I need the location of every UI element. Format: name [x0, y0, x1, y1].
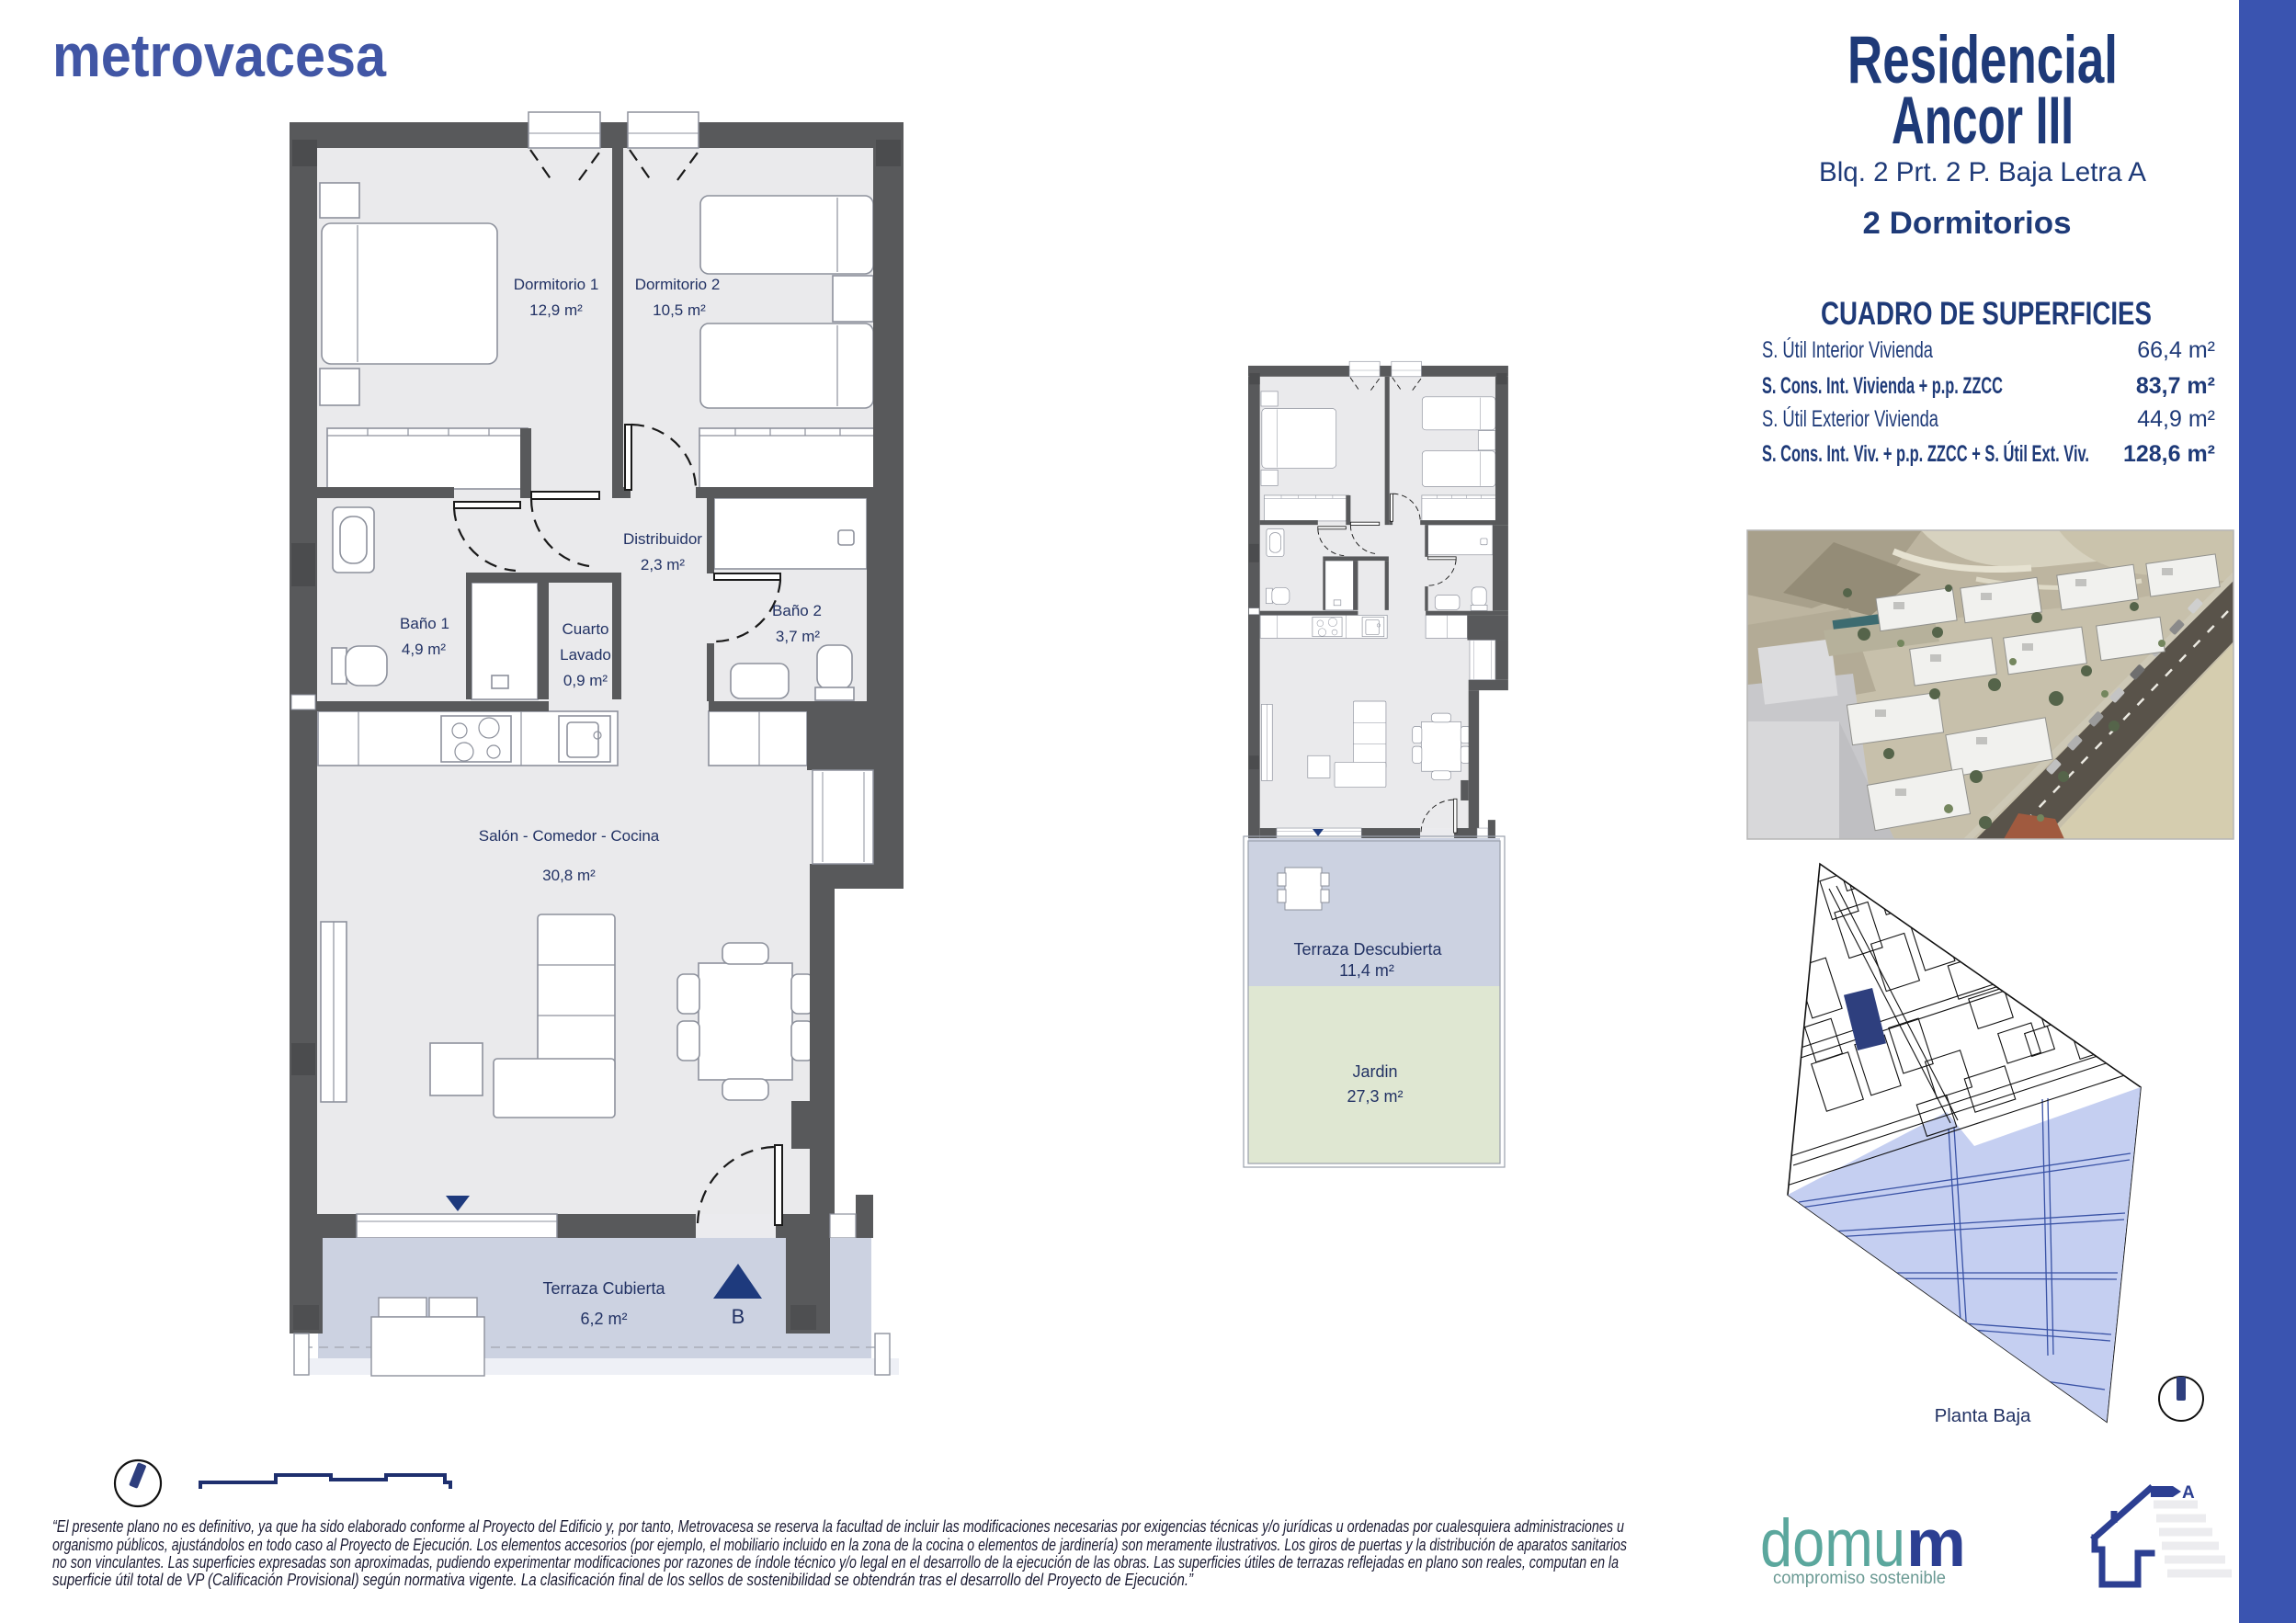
svg-text:3,7 m²: 3,7 m² — [776, 628, 821, 645]
svg-text:12,9 m²: 12,9 m² — [529, 301, 583, 319]
svg-text:B: B — [732, 1305, 745, 1328]
svg-text:Salón - Comedor - Cocina: Salón - Comedor - Cocina — [479, 827, 660, 845]
svg-text:Lavado: Lavado — [560, 646, 611, 664]
svg-text:10,5 m²: 10,5 m² — [653, 301, 706, 319]
svg-text:superficie útil total de VP (C: superficie útil total de VP (Calificació… — [52, 1571, 1194, 1589]
svg-text:0,9 m²: 0,9 m² — [563, 672, 608, 689]
svg-text:6,2 m²: 6,2 m² — [580, 1310, 627, 1328]
svg-text:Terraza Cubierta: Terraza Cubierta — [542, 1279, 665, 1298]
svg-text:Terraza Descubierta: Terraza Descubierta — [1293, 940, 1442, 959]
svg-text:30,8 m²: 30,8 m² — [542, 867, 596, 884]
svg-text:“El presente plano no es defin: “El presente plano no es definitivo, ya … — [52, 1517, 1624, 1536]
svg-text:Baño 2: Baño 2 — [772, 602, 822, 619]
svg-text:Jardin: Jardin — [1352, 1062, 1397, 1081]
svg-text:83,7 m²: 83,7 m² — [2136, 373, 2215, 399]
svg-text:S. Útil Interior Vivienda: S. Útil Interior Vivienda — [1762, 336, 1933, 363]
svg-text:2 Dormitorios: 2 Dormitorios — [1863, 206, 2072, 241]
svg-text:Ancor III: Ancor III — [1892, 84, 2074, 158]
svg-text:metrovacesa: metrovacesa — [52, 21, 387, 89]
svg-text:11,4 m²: 11,4 m² — [1339, 961, 1394, 980]
svg-text:S. Útil Exterior Vivienda: S. Útil Exterior Vivienda — [1762, 405, 1938, 432]
svg-text:CUADRO DE SUPERFICIES: CUADRO DE SUPERFICIES — [1821, 296, 2152, 332]
svg-text:Distribuidor: Distribuidor — [623, 530, 702, 548]
svg-text:Cuarto: Cuarto — [562, 620, 608, 638]
svg-text:no son vinculantes. Las superf: no son vinculantes. Las superficies expr… — [52, 1553, 1619, 1572]
svg-text:A: A — [2182, 1483, 2195, 1503]
svg-text:S. Cons. Int. Viv. + p.p. ZZCC: S. Cons. Int. Viv. + p.p. ZZCC + S. Útil… — [1762, 439, 2089, 467]
svg-text:Planta Baja: Planta Baja — [1935, 1405, 2031, 1426]
svg-text:organismo públicos, ajustándol: organismo públicos, ajustándolos en todo… — [52, 1536, 1627, 1554]
svg-text:Baño 1: Baño 1 — [400, 615, 449, 632]
svg-text:S. Cons. Int. Vivienda + p.p.: S. Cons. Int. Vivienda + p.p. ZZCC — [1762, 373, 2003, 399]
svg-text:44,9 m²: 44,9 m² — [2137, 406, 2215, 432]
svg-text:128,6 m²: 128,6 m² — [2123, 441, 2215, 467]
svg-text:Blq. 2 Prt. 2 P. Baja Letra A: Blq. 2 Prt. 2 P. Baja Letra A — [1819, 157, 2146, 187]
svg-text:Dormitorio 2: Dormitorio 2 — [635, 276, 721, 293]
svg-text:66,4 m²: 66,4 m² — [2137, 337, 2215, 363]
svg-text:4,9 m²: 4,9 m² — [402, 641, 447, 658]
svg-text:27,3 m²: 27,3 m² — [1347, 1087, 1403, 1106]
svg-text:2,3 m²: 2,3 m² — [641, 556, 686, 573]
svg-text:Dormitorio 1: Dormitorio 1 — [514, 276, 599, 293]
svg-text:compromiso sostenible: compromiso sostenible — [1773, 1569, 1946, 1588]
